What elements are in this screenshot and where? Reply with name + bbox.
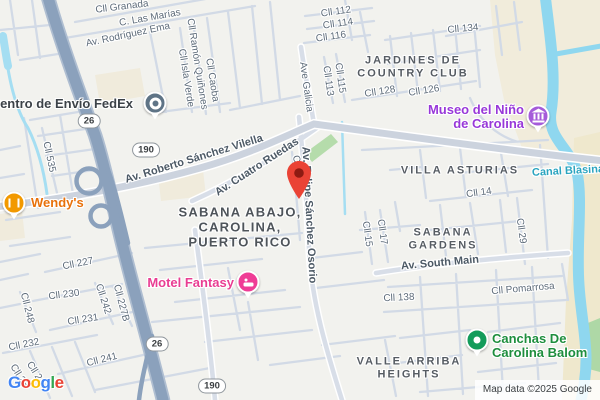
google-logo-letter: e <box>55 373 64 392</box>
route-badge-26: 26 <box>78 114 101 129</box>
area-label: VALLE ARRIBAHEIGHTS <box>357 355 462 380</box>
area-label: SABANAGARDENS <box>408 226 477 251</box>
motel-fantasy-label[interactable]: Motel Fantasy <box>147 276 234 290</box>
canchas-marker[interactable] <box>466 329 489 352</box>
area-label: JARDINES DECOUNTRY CLUB <box>357 54 468 79</box>
fedex-label[interactable]: Centro de Envío FedEx <box>0 97 133 111</box>
wendys-marker[interactable] <box>3 192 26 215</box>
museum-icon <box>537 113 539 119</box>
area-label: VILLA ASTURIAS <box>401 165 519 178</box>
google-logo-letter: o <box>31 373 41 392</box>
map-attribution: Map data ©2025 Google <box>475 380 600 400</box>
bed-icon <box>243 282 253 286</box>
ring-icon <box>149 97 161 109</box>
area-label: SABANA ABAJO,CAROLINA,PUERTO RICO <box>179 206 302 251</box>
museo-del-nino-marker[interactable] <box>527 105 550 128</box>
google-logo-letter: g <box>41 373 51 392</box>
google-logo-letter: o <box>21 373 31 392</box>
map-canvas[interactable]: Cll GranadaC. Las MaríasAv. Rodríguez Em… <box>0 0 600 400</box>
museo-del-nino-label[interactable]: Museo del Niñode Carolina <box>428 103 524 131</box>
google-logo-letter: G <box>8 373 21 392</box>
route-badge-26: 26 <box>146 337 169 352</box>
google-logo[interactable]: Google <box>8 373 64 393</box>
street-label: Cll 138 <box>383 292 415 305</box>
fedex-marker[interactable] <box>144 92 167 115</box>
dot-icon <box>474 337 481 344</box>
motel-fantasy-marker[interactable] <box>237 271 260 294</box>
wendys-label[interactable]: Wendy's <box>31 196 84 210</box>
rest-icon <box>9 199 20 208</box>
canchas-label[interactable]: Canchas DeCarolina Balom <box>492 332 587 360</box>
destination-pin[interactable] <box>286 160 312 200</box>
route-badge-190: 190 <box>198 379 226 394</box>
route-badge-190: 190 <box>132 143 160 158</box>
